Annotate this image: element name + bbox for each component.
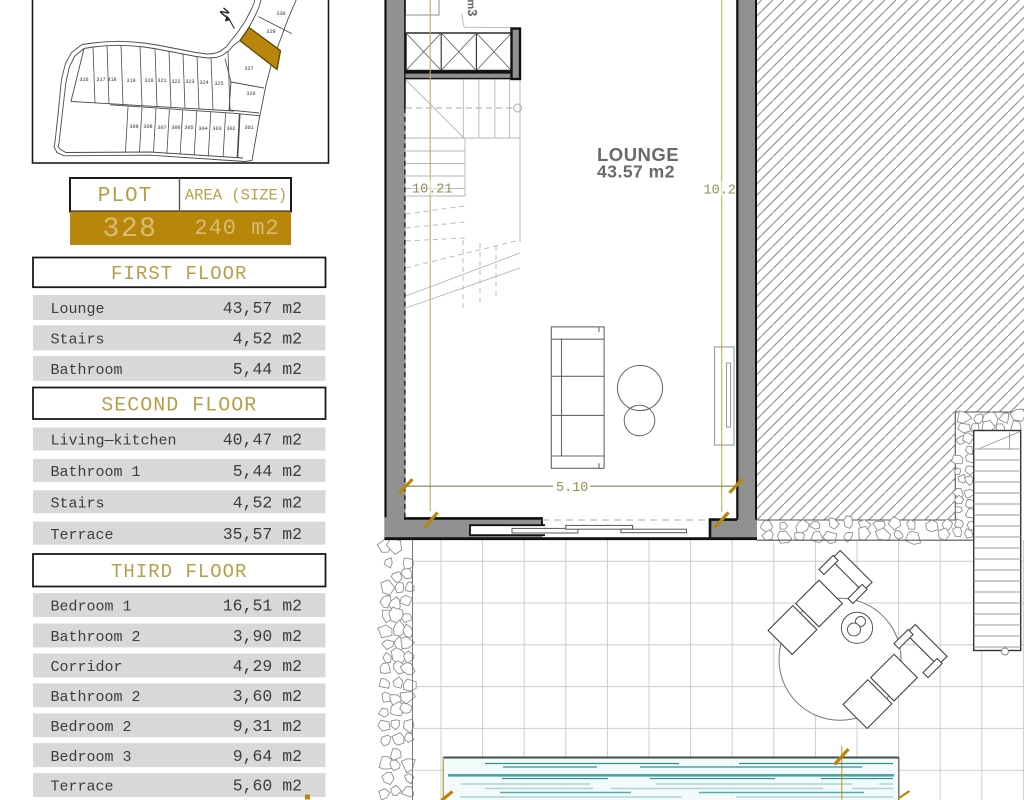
svg-text:Terrace: Terrace bbox=[51, 527, 114, 544]
svg-text:Corridor: Corridor bbox=[51, 659, 123, 676]
svg-text:Bedroom 1: Bedroom 1 bbox=[51, 599, 132, 616]
svg-text:Terrace: Terrace bbox=[51, 779, 114, 796]
svg-text:Bedroom 3: Bedroom 3 bbox=[51, 749, 132, 766]
svg-text:324: 324 bbox=[199, 80, 208, 86]
svg-text:3,90 m2: 3,90 m2 bbox=[233, 627, 302, 646]
svg-text:Stairs: Stairs bbox=[51, 331, 105, 348]
svg-text:326: 326 bbox=[246, 91, 255, 97]
svg-text:40,47 m2: 40,47 m2 bbox=[223, 431, 302, 450]
svg-text:323: 323 bbox=[185, 79, 194, 85]
svg-text:302: 302 bbox=[226, 126, 235, 132]
svg-text:9,64 m2: 9,64 m2 bbox=[233, 747, 302, 766]
svg-text:Bathroom 1: Bathroom 1 bbox=[51, 464, 141, 481]
svg-text:321: 321 bbox=[157, 78, 166, 84]
svg-text:5.10: 5.10 bbox=[556, 481, 588, 496]
svg-text:317: 317 bbox=[96, 77, 105, 83]
svg-text:AREA (SIZE): AREA (SIZE) bbox=[185, 187, 287, 205]
svg-text:16,51 m2: 16,51 m2 bbox=[223, 597, 302, 616]
svg-text:306: 306 bbox=[171, 125, 180, 131]
svg-text:330: 330 bbox=[276, 11, 285, 17]
svg-text:Living—kitchen: Living—kitchen bbox=[51, 433, 177, 450]
svg-text:43,57 m2: 43,57 m2 bbox=[223, 299, 302, 318]
svg-text:THIRD FLOOR: THIRD FLOOR bbox=[111, 561, 247, 583]
svg-text:5,60 m2: 5,60 m2 bbox=[233, 777, 302, 796]
svg-text:327: 327 bbox=[244, 66, 253, 72]
svg-text:240 m2: 240 m2 bbox=[194, 216, 279, 241]
svg-text:4,52 m2: 4,52 m2 bbox=[233, 329, 302, 348]
svg-text:307: 307 bbox=[157, 125, 166, 131]
svg-text:319: 319 bbox=[126, 78, 135, 84]
svg-text:316: 316 bbox=[79, 77, 88, 83]
svg-text:303: 303 bbox=[212, 126, 221, 132]
svg-text:43.57 m2: 43.57 m2 bbox=[597, 162, 675, 182]
svg-text:309: 309 bbox=[129, 124, 138, 130]
svg-text:5,44 m2: 5,44 m2 bbox=[233, 462, 302, 481]
svg-text:325: 325 bbox=[214, 81, 223, 87]
svg-text:318: 318 bbox=[107, 77, 116, 83]
svg-text:308: 308 bbox=[143, 124, 152, 130]
svg-text:329: 329 bbox=[266, 29, 275, 35]
svg-text:10.21: 10.21 bbox=[412, 183, 453, 198]
svg-text:322: 322 bbox=[171, 79, 180, 85]
svg-text:10.2: 10.2 bbox=[704, 184, 736, 199]
svg-text:35,57 m2: 35,57 m2 bbox=[223, 525, 302, 544]
svg-text:Bathroom 2: Bathroom 2 bbox=[51, 689, 141, 706]
svg-text:320: 320 bbox=[144, 78, 153, 84]
svg-text:328: 328 bbox=[103, 214, 158, 245]
svg-text:Bathroom 2: Bathroom 2 bbox=[51, 629, 141, 646]
svg-text:PLOT: PLOT bbox=[98, 185, 152, 208]
svg-text:Lounge: Lounge bbox=[51, 301, 105, 318]
svg-text:9,31 m2: 9,31 m2 bbox=[233, 717, 302, 736]
svg-text:Bedroom 2: Bedroom 2 bbox=[51, 719, 132, 736]
svg-text:Bathroom: Bathroom bbox=[51, 362, 123, 379]
svg-text:FIRST FLOOR: FIRST FLOOR bbox=[111, 263, 247, 285]
svg-text:Stairs: Stairs bbox=[51, 495, 105, 512]
svg-text:301: 301 bbox=[244, 125, 253, 131]
svg-text:3,60 m2: 3,60 m2 bbox=[233, 687, 302, 706]
svg-text:304: 304 bbox=[198, 126, 207, 132]
svg-text:5,44 m2: 5,44 m2 bbox=[233, 360, 302, 379]
svg-text:SECOND FLOOR: SECOND FLOOR bbox=[101, 394, 257, 417]
svg-text:4,29 m2: 4,29 m2 bbox=[233, 657, 302, 676]
svg-text:4,52 m2: 4,52 m2 bbox=[233, 493, 302, 512]
svg-text:305: 305 bbox=[184, 125, 193, 131]
